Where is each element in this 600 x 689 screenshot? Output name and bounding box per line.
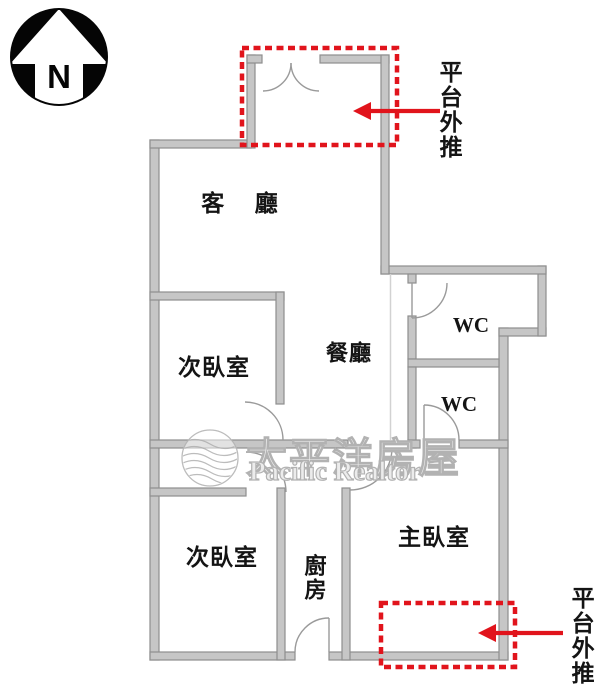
wall-balcony-right <box>381 55 389 274</box>
wall-balcony-top-stub <box>247 55 262 63</box>
floorplan-drawing: N <box>0 0 600 689</box>
wall-kitchen-left <box>277 488 285 660</box>
wall-wc1-left <box>408 316 416 359</box>
wall-wc-divider <box>408 359 499 367</box>
wall-bedroom1-top <box>150 292 284 300</box>
wall-living-top <box>150 140 251 148</box>
wall-bedroom2-top <box>150 488 246 496</box>
wall-bedroom1-right <box>276 292 284 404</box>
floorplan-page: N 太平洋房屋 Pacific Realtor 客 廳 次臥室 餐廳 WC WC… <box>0 0 600 689</box>
wc1-door-arc <box>412 283 447 318</box>
balcony-door-right-arc <box>291 63 319 91</box>
room-label-master: 主臥室 <box>398 525 470 549</box>
room-label-bedroom-upper: 次臥室 <box>178 355 250 379</box>
north-arrow-icon: N <box>10 8 108 106</box>
room-label-dining: 餐廳 <box>326 341 372 364</box>
platform-annotations <box>242 48 563 667</box>
annotation-platform-top: 平台外推 <box>437 60 461 160</box>
wall-balcony-left <box>247 55 255 148</box>
watermark-logo-icon <box>179 430 242 486</box>
room-label-living: 客 廳 <box>201 191 278 215</box>
wall-wc-top <box>381 266 546 274</box>
watermark-latin-text: Pacific Realtor <box>249 456 421 487</box>
wall-wc1-stub <box>408 274 416 283</box>
room-label-kitchen: 廚房 <box>302 554 325 602</box>
room-label-wc-lower: WC <box>441 393 477 415</box>
arrow-bottom-head-icon <box>478 624 496 642</box>
room-label-bedroom-lower: 次臥室 <box>186 545 258 569</box>
wall-wc2-bottom <box>459 440 508 448</box>
wall-right-upper <box>538 266 546 336</box>
wall-bottom-left <box>150 652 295 660</box>
annotation-platform-bottom: 平台外推 <box>569 586 593 686</box>
balcony-door-left-arc <box>263 63 291 91</box>
compass-letter: N <box>47 58 71 95</box>
wall-balcony-top-right <box>320 55 389 63</box>
room-label-wc-upper: WC <box>453 314 489 336</box>
wall-left-outer <box>150 140 159 660</box>
arrow-top-head-icon <box>353 102 371 120</box>
wall-right-main <box>499 328 508 660</box>
kitchen-door-arc <box>295 618 329 652</box>
wall-kitchen-right <box>342 488 350 660</box>
wall-bottom-right <box>329 652 508 660</box>
